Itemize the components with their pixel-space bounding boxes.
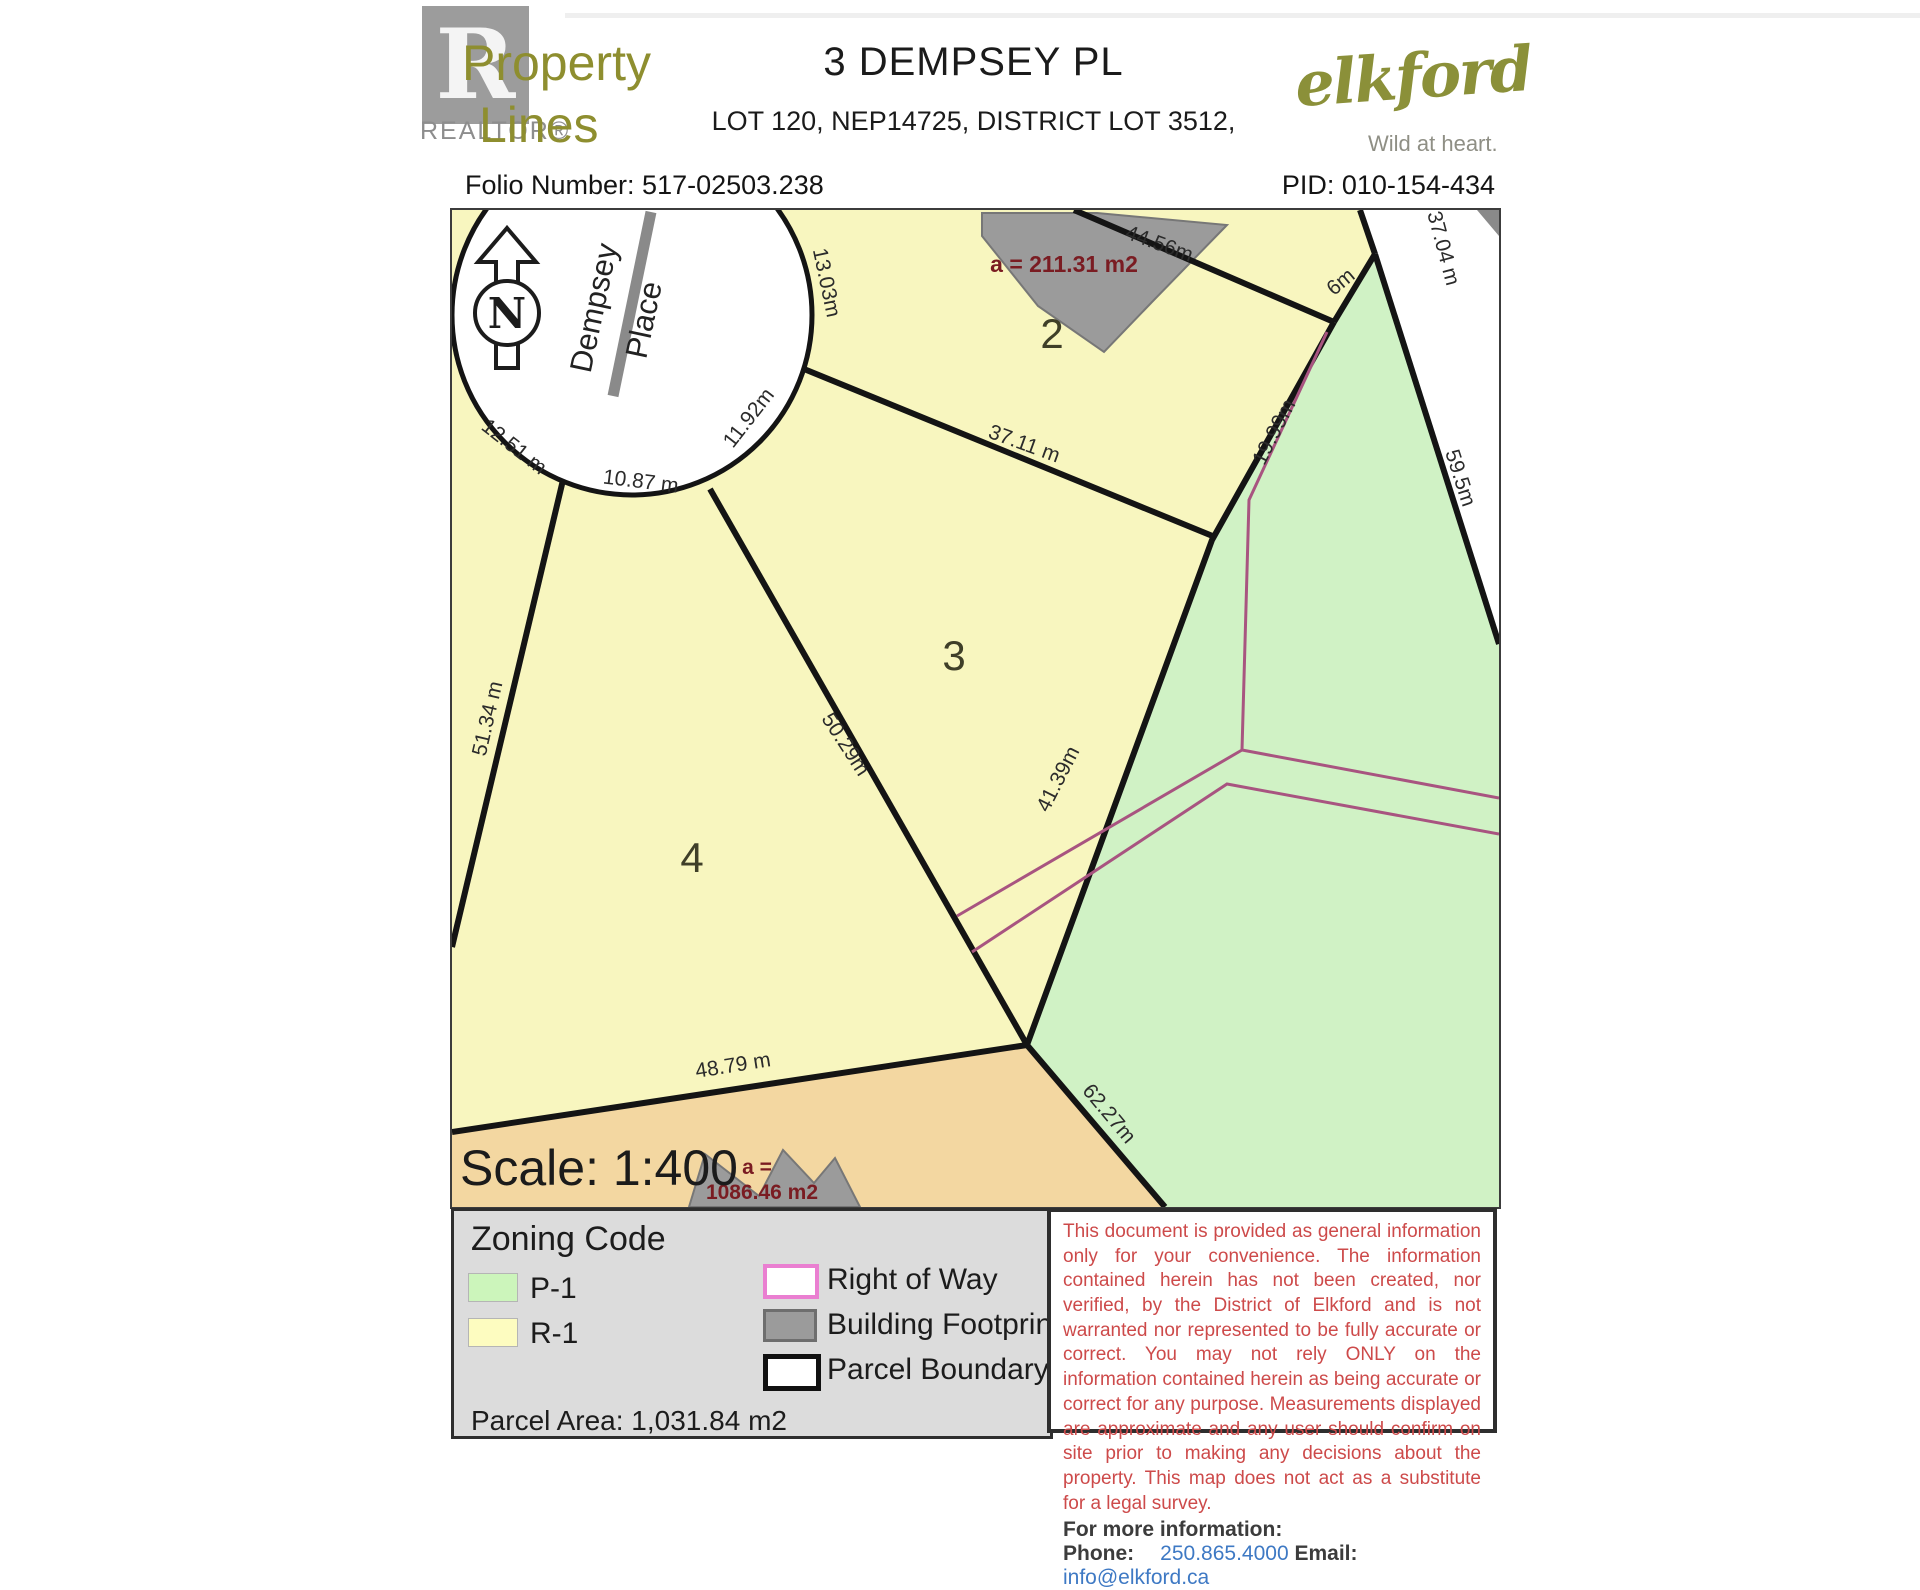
- legend-swatch-r1: [468, 1318, 518, 1347]
- parcel-map: N Dempsey Place 12.51 m 10.87 m 11.92m 1…: [450, 208, 1501, 1209]
- top-divider: [565, 13, 1920, 18]
- map-scale: Scale: 1:400: [460, 1140, 738, 1196]
- parcel-number-2: 2: [1040, 310, 1063, 357]
- legend-swatch-right-of-way: [763, 1264, 819, 1299]
- brand-lines: Lines: [479, 96, 599, 154]
- legend-swatch-parcel-boundary: [763, 1354, 821, 1391]
- legend-label-p1: P-1: [530, 1272, 577, 1306]
- legend-label-r1: R-1: [530, 1317, 578, 1351]
- email-value: info@elkford.ca: [1063, 1566, 1209, 1589]
- parcel-map-svg: N Dempsey Place 12.51 m 10.87 m 11.92m 1…: [452, 210, 1499, 1207]
- disclaimer-text: This document is provided as general inf…: [1063, 1220, 1481, 1516]
- contact-line: Phone:250.865.4000 Email: info@elkford.c…: [1063, 1542, 1481, 1590]
- parcel-area-text: Parcel Area: 1,031.84 m2: [471, 1405, 787, 1437]
- legend-zoning-title: Zoning Code: [471, 1220, 666, 1259]
- building-area-bottom-line1: a =: [742, 1156, 772, 1179]
- legend-swatch-p1: [468, 1273, 518, 1302]
- elkford-logo: elkford: [1293, 32, 1534, 121]
- legend-label-right-of-way: Right of Way: [827, 1263, 998, 1297]
- legend-label-building-footprint: Building Footprint: [827, 1308, 1060, 1342]
- elkford-tagline: Wild at heart.: [1368, 131, 1498, 157]
- more-info-label: For more information:: [1063, 1518, 1481, 1542]
- legend-label-parcel-boundary: Parcel Boundary: [827, 1353, 1049, 1387]
- disclaimer-panel: This document is provided as general inf…: [1047, 1208, 1497, 1433]
- phone-value: 250.865.4000: [1160, 1542, 1288, 1565]
- phone-label: Phone:: [1063, 1542, 1134, 1565]
- legend-swatch-building-footprint: [763, 1309, 817, 1342]
- building-area-top: a = 211.31 m2: [990, 251, 1138, 277]
- email-label: Email:: [1294, 1542, 1357, 1565]
- parcel-number-4: 4: [680, 834, 703, 881]
- parcel-number-3: 3: [942, 632, 965, 679]
- north-letter: N: [488, 289, 526, 338]
- brand-property: Property: [462, 34, 651, 92]
- pid-number: PID: 010-154-434: [450, 170, 1495, 201]
